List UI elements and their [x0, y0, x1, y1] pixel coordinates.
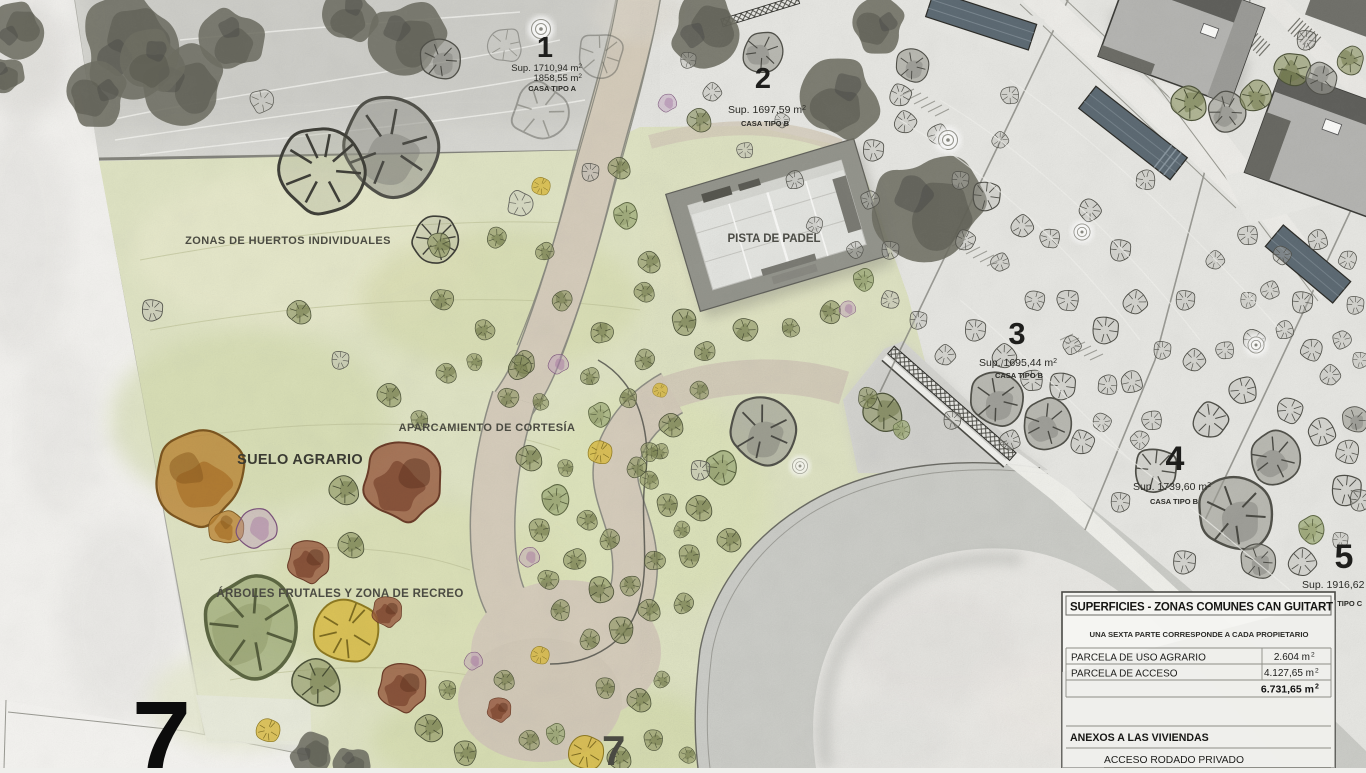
svg-text:CASA TIPO A: CASA TIPO A [528, 84, 576, 93]
svg-text:1: 1 [537, 32, 553, 64]
svg-text:ÁRBOLES FRUTALES Y ZONA DE REC: ÁRBOLES FRUTALES Y ZONA DE RECREO [216, 587, 463, 600]
svg-text:4: 4 [1166, 440, 1185, 478]
svg-text:ANEXOS A LAS VIVIENDAS: ANEXOS A LAS VIVIENDAS [1070, 732, 1209, 744]
svg-text:Sup. 1695,44 m2: Sup. 1695,44 m2 [979, 357, 1057, 369]
svg-text:CASA TIPO B: CASA TIPO B [741, 119, 790, 128]
svg-text:4.127,65 m: 4.127,65 m [1264, 668, 1314, 679]
svg-text:Sup. 1916,62: Sup. 1916,62 [1302, 579, 1365, 591]
svg-text:CASA TIPO B: CASA TIPO B [1150, 497, 1199, 506]
svg-text:7: 7 [132, 680, 191, 768]
svg-text:PISTA DE PADEL: PISTA DE PADEL [727, 233, 820, 245]
svg-text:7: 7 [602, 727, 625, 768]
svg-text:2: 2 [1315, 668, 1319, 675]
svg-text:2: 2 [1311, 652, 1315, 659]
svg-text:5: 5 [1335, 538, 1354, 576]
svg-text:ACCESO RODADO PRIVADO: ACCESO RODADO PRIVADO [1104, 755, 1244, 766]
svg-text:PARCELA DE USO AGRARIO: PARCELA DE USO AGRARIO [1071, 653, 1206, 664]
svg-text:PARCELA DE ACCESO: PARCELA DE ACCESO [1071, 669, 1178, 680]
svg-text:6.731,65 m: 6.731,65 m [1261, 684, 1314, 696]
svg-text:2: 2 [1315, 684, 1319, 691]
svg-text:Sup. 1739,60 m2: Sup. 1739,60 m2 [1133, 481, 1211, 493]
svg-text:Sup. 1697,59 m2: Sup. 1697,59 m2 [728, 104, 806, 116]
svg-text:SUELO AGRARIO: SUELO AGRARIO [237, 452, 363, 468]
svg-text:ZONAS DE HUERTOS INDIVIDUALES: ZONAS DE HUERTOS INDIVIDUALES [185, 235, 391, 247]
svg-text:APARCAMIENTO DE CORTESÍA: APARCAMIENTO DE CORTESÍA [399, 421, 576, 434]
svg-text:UNA SEXTA PARTE CORRESPONDE A: UNA SEXTA PARTE CORRESPONDE A CADA PROPI… [1090, 630, 1309, 639]
svg-text:1858,55 m2: 1858,55 m2 [533, 73, 582, 84]
svg-text:SUPERFICIES - ZONAS COMUNES CA: SUPERFICIES - ZONAS COMUNES CAN GUITART [1070, 602, 1333, 614]
svg-text:CASA TIPO B: CASA TIPO B [995, 371, 1044, 380]
svg-text:2.604 m: 2.604 m [1274, 652, 1310, 663]
svg-text:2: 2 [755, 63, 771, 95]
svg-text:3: 3 [1008, 316, 1025, 351]
